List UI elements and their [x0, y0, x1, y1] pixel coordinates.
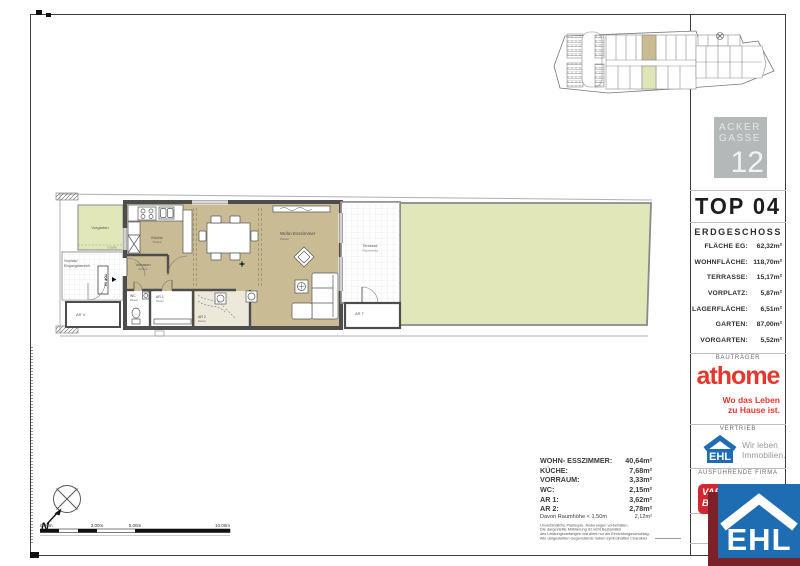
- area-row: FLÄCHE EG:62,32m²: [690, 243, 782, 259]
- note-value: 2,12m²: [614, 514, 652, 520]
- room-height-note: Davon Raumhöhe < 1.50m2,12m²: [540, 514, 652, 521]
- floor-subtitle: ERDGESCHOSS: [690, 227, 782, 237]
- room-label-arv: AR V: [76, 312, 86, 317]
- plan-sheet: Vorgarten STUFE Vorplatz/ Eingangsbereic…: [0, 0, 800, 566]
- sales-heading: VERTRIEB: [690, 426, 786, 432]
- area-row: TERRASSE:15,17m²: [690, 274, 782, 290]
- project-name-line2: GASSE: [719, 133, 761, 144]
- developer-heading: BAUTRÄGER: [690, 355, 786, 361]
- project-number: 12: [731, 146, 764, 180]
- site-highlight-garden: [642, 66, 656, 89]
- area-label: GARTEN:: [690, 321, 748, 328]
- area-label: TERRASSE:: [690, 274, 748, 281]
- athome-logo: athome: [690, 362, 786, 391]
- area-row: WOHNFLÄCHE:118,70m²: [690, 259, 782, 275]
- room-sublabel-ar1: Fliesen: [156, 300, 165, 303]
- area-label: VORGARTEN:: [690, 337, 748, 344]
- scale-tick: 10.00m: [215, 523, 230, 528]
- room-sublabel-wohn: Parkett: [280, 237, 289, 241]
- unit-title: TOP 04: [692, 193, 783, 220]
- scale-bar: 0.00m 3.00m 5.00m 10.00m: [40, 522, 235, 538]
- site-plan: [548, 22, 780, 106]
- rooms-list: WOHN- ESSZIMMER:40,64m² KÜCHE:7,68m² VOR…: [540, 456, 652, 521]
- project-badge: ACKER GASSE 12: [714, 117, 767, 178]
- room-label-ar2: AR 2: [198, 315, 206, 319]
- area-label: FLÄCHE EG:: [690, 243, 748, 250]
- room-value: 7,68m²: [614, 466, 652, 475]
- room-sublabel-ar2: Fliesen: [198, 320, 207, 323]
- room-label-wohn: Wohn-Esszimmer: [280, 231, 316, 236]
- area-label: LAGERFLÄCHE:: [690, 306, 748, 313]
- room-value: 2,78m²: [614, 504, 652, 513]
- panel-rule: [690, 468, 786, 469]
- room-label: KÜCHE:: [540, 466, 614, 475]
- scale-tick: 0.00m: [40, 523, 53, 528]
- terrace-area: Terrasse Plattenbelag: [341, 202, 400, 303]
- ehl-wordmark-large: EHL: [727, 522, 792, 557]
- ehl-wordmark-small: EHL: [709, 451, 731, 463]
- room-value: 3,62m²: [614, 495, 652, 504]
- site-highlight-unit: [642, 35, 656, 60]
- crop-mark: [46, 13, 51, 17]
- room-label: WOHN- ESSZIMMER:: [540, 456, 614, 465]
- athome-tagline-line1: Wo das Leben: [690, 395, 780, 405]
- room-label: VORRAUM:: [540, 475, 614, 484]
- area-table: FLÄCHE EG:62,32m² WOHNFLÄCHE:118,70m² TE…: [690, 243, 782, 353]
- disclaimer: Unverbindliche Plankopie. Änderungen vor…: [540, 523, 700, 545]
- area-value: 5,52m²: [748, 337, 782, 344]
- area-row: VORPLATZ:5,87m²: [690, 290, 782, 306]
- area-value: 62,32m²: [748, 243, 782, 250]
- room-label-terrasse: Terrasse: [362, 243, 378, 248]
- scale-tick: 5.00m: [129, 523, 142, 528]
- arv-room: AR V: [66, 302, 120, 327]
- room-row: KÜCHE:7,68m²: [540, 466, 652, 476]
- party-wall-stub: [56, 193, 78, 200]
- area-value: 15,17m²: [748, 274, 782, 281]
- athome-tagline: Wo das Leben zu Hause ist.: [690, 395, 780, 415]
- ehl-logo-large: EHL: [718, 484, 800, 558]
- plan-info-microtext: [31, 345, 33, 543]
- room-label-art: AR T: [355, 311, 365, 316]
- unit-entry-label: TOP 04: [104, 274, 108, 286]
- room-row: WOHN- ESSZIMMER:40,64m²: [540, 456, 652, 466]
- room-label-ar1: AR 1: [156, 295, 164, 299]
- boundary-tick: [155, 331, 164, 336]
- athome-tagline-line2: zu Hause ist.: [690, 405, 780, 415]
- scale-tick: 3.00m: [91, 523, 104, 528]
- floor-plan: Vorgarten STUFE Vorplatz/ Eingangsbereic…: [40, 185, 690, 345]
- ehl-tagline-line2: Immobilien.: [742, 451, 785, 461]
- room-label-stufe: STUFE: [107, 246, 116, 250]
- room-sublabel-vorraum: Parkett: [139, 267, 148, 271]
- room-value: 40,64m²: [614, 456, 652, 465]
- crop-mark: [36, 10, 42, 15]
- project-name-line1: ACKER: [719, 122, 761, 133]
- vorgarten-area: Vorgarten STUFE: [78, 205, 123, 250]
- house-roof-icon: [705, 438, 735, 449]
- area-row: GARTEN:87,00m²: [690, 321, 782, 337]
- vorplatz-area: Vorplatz/ Eingangsbereich TOP 04: [62, 252, 123, 300]
- room-label-wc: WC: [130, 294, 136, 298]
- room-label-vorgarten: Vorgarten: [91, 225, 108, 230]
- room-sublabel-kueche: Parkett: [153, 240, 162, 244]
- area-row: VORGARTEN:5,52m²: [690, 337, 782, 353]
- area-label: WOHNFLÄCHE:: [690, 259, 748, 266]
- small-rule: [655, 538, 681, 539]
- room-sublabel-terrasse: Plattenbelag: [362, 249, 378, 253]
- ehl-tagline: Wir leben Immobilien.: [742, 441, 785, 460]
- area-label: VORPLATZ:: [690, 290, 748, 297]
- panel-rule: [690, 190, 786, 191]
- art-room: AR T: [345, 303, 400, 328]
- panel-rule: [690, 424, 786, 425]
- area-value: 5,87m²: [748, 290, 782, 297]
- room-row: AR 2:2,78m²: [540, 504, 652, 514]
- note-label: Davon Raumhöhe < 1.50m: [540, 514, 614, 520]
- room-row: WC:2,15m²: [540, 485, 652, 495]
- ehl-logo-small: EHL: [702, 435, 738, 465]
- area-value: 6,51m²: [748, 306, 782, 313]
- room-value: 3,33m²: [614, 475, 652, 484]
- panel-rule: [690, 353, 786, 354]
- room-label: AR 1:: [540, 495, 614, 504]
- room-label-vorplatz-1: Vorplatz/: [64, 259, 78, 263]
- panel-rule: [690, 222, 786, 223]
- area-value: 87,00m²: [748, 321, 782, 328]
- room-sublabel-wc: Fliesen: [130, 299, 139, 302]
- room-row: AR 1:3,62m²: [540, 495, 652, 505]
- room-value: 2,15m²: [614, 485, 652, 494]
- room-label-vorplatz-2: Eingangsbereich: [64, 264, 90, 268]
- crop-mark: [30, 552, 39, 558]
- contractor-heading: AUSFÜHRENDE FIRMA: [690, 470, 786, 476]
- room-row: VORRAUM:3,33m²: [540, 475, 652, 485]
- area-value: 118,70m²: [748, 259, 782, 266]
- room-label: AR 2:: [540, 504, 614, 513]
- area-row: LAGERFLÄCHE:6,51m²: [690, 306, 782, 322]
- garden-area: [400, 203, 651, 325]
- room-label: WC:: [540, 485, 614, 494]
